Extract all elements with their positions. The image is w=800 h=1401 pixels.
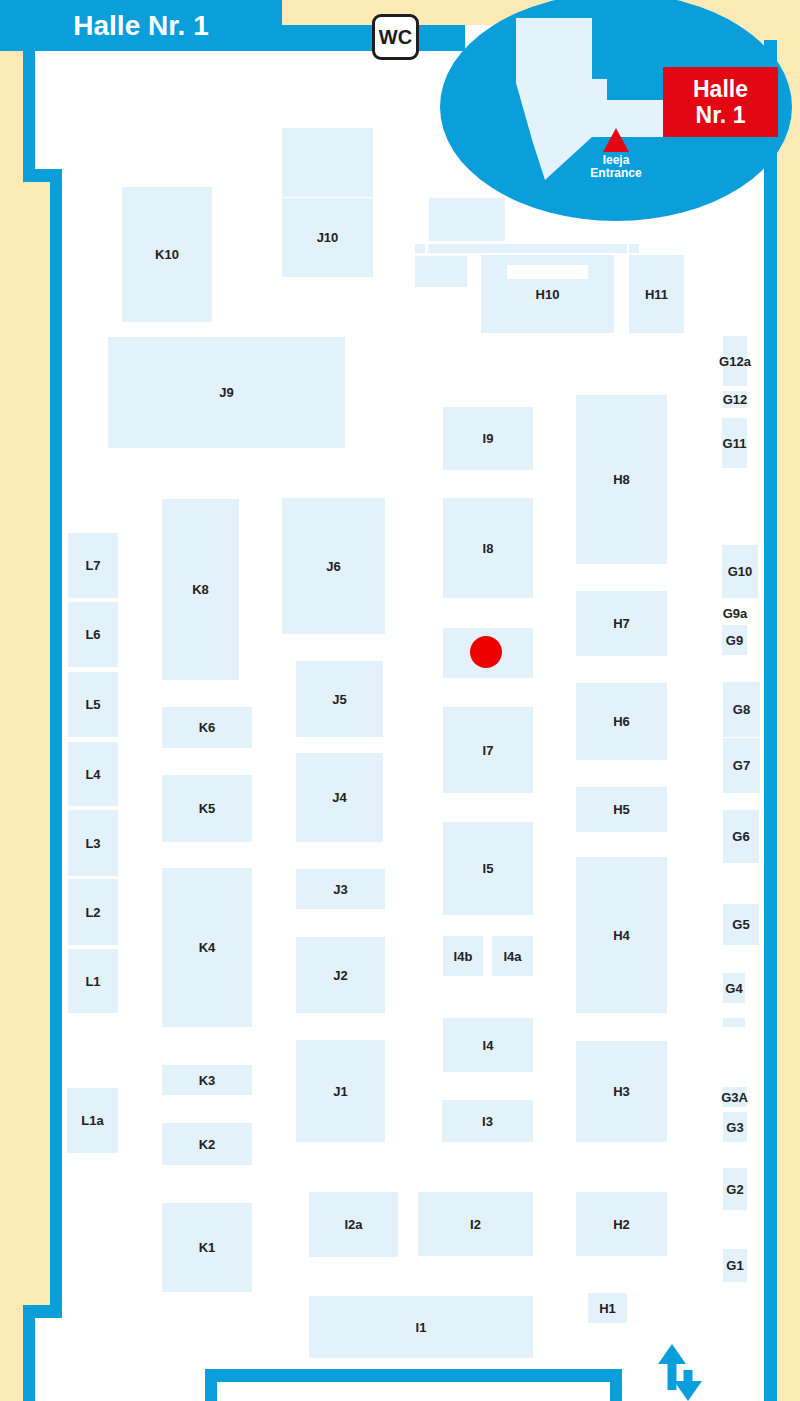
booth-label: H1 xyxy=(599,1301,616,1316)
wall-bottom-entrance-stub-right xyxy=(610,1382,622,1401)
wall-left-lower xyxy=(23,1318,35,1401)
booth-label: K10 xyxy=(155,247,179,262)
map-area-area-top-2 xyxy=(415,256,467,287)
booth-label: J5 xyxy=(332,692,346,707)
booth-j6[interactable]: J6 xyxy=(282,498,385,634)
booth-label: G12 xyxy=(723,392,748,407)
booth-l4[interactable]: L4 xyxy=(68,742,118,806)
booth-label: L4 xyxy=(85,767,100,782)
booth-label: K3 xyxy=(199,1073,216,1088)
booth-label: G4 xyxy=(725,981,742,996)
booth-g2[interactable]: G2 xyxy=(723,1168,747,1210)
booth-j3[interactable]: J3 xyxy=(296,869,385,909)
booth-label: G11 xyxy=(723,436,747,451)
booth-label: I4b xyxy=(454,949,473,964)
booth-i3[interactable]: I3 xyxy=(442,1100,533,1142)
booth-label: J1 xyxy=(333,1084,347,1099)
booth-k10[interactable]: K10 xyxy=(122,187,212,322)
booth-label: J4 xyxy=(332,790,346,805)
booth-h2[interactable]: H2 xyxy=(576,1192,667,1256)
booth-label: G9a xyxy=(723,606,748,621)
booth-label: I9 xyxy=(483,431,494,446)
wall-bottom-entrance-stub-left xyxy=(205,1382,217,1401)
booth-l2[interactable]: L2 xyxy=(68,879,118,945)
booth-label: I4a xyxy=(503,949,521,964)
booth-i2[interactable]: I2 xyxy=(418,1192,533,1256)
booth-label: L5 xyxy=(85,697,100,712)
booth-i5[interactable]: I5 xyxy=(443,822,533,915)
booth-l5[interactable]: L5 xyxy=(68,672,118,737)
booth-l1a[interactable]: L1a xyxy=(67,1088,118,1153)
booth-g12a[interactable]: G12a xyxy=(723,336,747,386)
booth-g12[interactable]: G12 xyxy=(723,391,747,408)
booth-label: H4 xyxy=(613,928,630,943)
entrance-marker-icon xyxy=(603,128,629,152)
booth-h3[interactable]: H3 xyxy=(576,1041,667,1142)
booth-k1[interactable]: K1 xyxy=(162,1203,252,1292)
booth-h6[interactable]: H6 xyxy=(576,683,667,760)
booth-label: H5 xyxy=(613,802,630,817)
booth-label: J2 xyxy=(333,968,347,983)
booth-k4[interactable]: K4 xyxy=(162,868,252,1027)
booth-g5[interactable]: G5 xyxy=(723,904,759,945)
background-right-column xyxy=(777,25,800,1401)
booth-label: H2 xyxy=(613,1217,630,1232)
booth-label: H10 xyxy=(536,287,560,302)
booth-g3[interactable]: G3 xyxy=(723,1112,747,1142)
booth-label: H3 xyxy=(613,1084,630,1099)
booth-i4[interactable]: I4 xyxy=(443,1018,533,1072)
wall-right xyxy=(764,40,777,1401)
booth-label: G3 xyxy=(726,1120,743,1135)
booth-g6[interactable]: G6 xyxy=(723,810,759,863)
booth-j4[interactable]: J4 xyxy=(296,753,383,842)
booth-k3[interactable]: K3 xyxy=(162,1065,252,1095)
booth-k2[interactable]: K2 xyxy=(162,1123,252,1165)
booth-l1[interactable]: L1 xyxy=(68,949,118,1013)
booth-label: L3 xyxy=(85,836,100,851)
booth-label: G9 xyxy=(726,633,743,648)
booth-g7[interactable]: G7 xyxy=(723,738,760,793)
booth-g4[interactable]: G4 xyxy=(723,973,745,1003)
wall-left-main xyxy=(50,170,62,1305)
booth-g3a[interactable]: G3A xyxy=(722,1087,747,1107)
booth-label: I1 xyxy=(416,1320,427,1335)
map-area-strip-1 xyxy=(415,244,425,253)
booth-i8[interactable]: I8 xyxy=(443,498,533,598)
booth-i7[interactable]: I7 xyxy=(443,707,533,793)
booth-label: I3 xyxy=(482,1114,493,1129)
hall-title-banner: Halle Nr. 1 xyxy=(0,0,282,51)
stairs-up-down-icon xyxy=(652,1341,704,1401)
booth-l6[interactable]: L6 xyxy=(68,602,118,667)
booth-g10[interactable]: G10 xyxy=(722,545,758,598)
booth-h11[interactable]: H11 xyxy=(629,255,684,333)
wall-bottom-entrance-bar xyxy=(205,1369,622,1382)
booth-j2[interactable]: J2 xyxy=(296,937,385,1013)
booth-label: K2 xyxy=(199,1137,216,1152)
booth-label: G3A xyxy=(721,1090,748,1105)
booth-label: I4 xyxy=(483,1038,494,1053)
booth-i1[interactable]: I1 xyxy=(309,1296,533,1358)
background-left-wide xyxy=(0,172,50,1305)
booth-l3[interactable]: L3 xyxy=(68,810,118,876)
booth-label: K4 xyxy=(199,940,216,955)
booth-h10[interactable]: H10 xyxy=(481,255,614,333)
booth-i2a[interactable]: I2a xyxy=(309,1192,398,1257)
booth-label: J10 xyxy=(317,230,339,245)
booth-label: I8 xyxy=(483,541,494,556)
wc-sign: WC xyxy=(372,14,419,60)
booth-label: G1 xyxy=(726,1258,743,1273)
booth-label: K8 xyxy=(192,582,209,597)
booth-label: L2 xyxy=(85,905,100,920)
booth-label: H6 xyxy=(613,714,630,729)
booth-h7[interactable]: H7 xyxy=(576,591,667,656)
map-area-strip-2 xyxy=(428,244,627,253)
booth-i9[interactable]: I9 xyxy=(443,407,533,470)
booth-i4a[interactable]: I4a xyxy=(492,936,533,976)
entrance-label: Ieeja Entrance xyxy=(566,154,666,180)
booth-k8[interactable]: K8 xyxy=(162,499,239,680)
booth-k6[interactable]: K6 xyxy=(162,707,252,748)
booth-label: L7 xyxy=(85,558,100,573)
booth-label: G12a xyxy=(719,354,751,369)
wall-left-upper xyxy=(23,51,35,172)
hall-title: Halle Nr. 1 xyxy=(73,10,208,42)
booth-j5[interactable]: J5 xyxy=(296,661,383,737)
booth-g9[interactable]: G9 xyxy=(722,625,747,655)
booth-g11[interactable]: G11 xyxy=(722,418,747,468)
booth-i4b[interactable]: I4b xyxy=(443,936,483,976)
booth-label: G7 xyxy=(733,758,750,773)
booth-label: G2 xyxy=(726,1182,743,1197)
booth-label: L1 xyxy=(85,974,100,989)
booth-notch xyxy=(507,265,588,279)
booth-g1[interactable]: G1 xyxy=(723,1249,747,1282)
booth-label: G8 xyxy=(733,702,750,717)
booth-j10[interactable]: J10 xyxy=(282,198,373,277)
map-area-J10-annex xyxy=(282,128,373,197)
booth-label: J6 xyxy=(326,559,340,574)
booth-h5[interactable]: H5 xyxy=(576,787,667,832)
map-area-strip-3 xyxy=(629,244,639,253)
booth-label: I2a xyxy=(344,1217,362,1232)
wc-sign-label: WC xyxy=(379,26,412,49)
booth-label: G10 xyxy=(728,564,753,579)
booth-label: L6 xyxy=(85,627,100,642)
booth-g9a[interactable]: G9a xyxy=(723,604,747,622)
booth-h8[interactable]: H8 xyxy=(576,395,667,564)
booth-label: L1a xyxy=(81,1113,103,1128)
booth-label: G6 xyxy=(732,829,749,844)
booth-label: K6 xyxy=(199,720,216,735)
booth-g8[interactable]: G8 xyxy=(723,682,760,737)
booth-label: J3 xyxy=(333,882,347,897)
entrance-label-line2: Entrance xyxy=(566,167,666,180)
map-area-strip-g4 xyxy=(723,1018,745,1027)
inset-hall-label-line1: Halle xyxy=(693,76,748,102)
inset-hall-label: Halle Nr. 1 xyxy=(663,67,778,137)
booth-label: K5 xyxy=(199,801,216,816)
inset-hall-label-line2: Nr. 1 xyxy=(696,102,746,128)
wall-left-jog-bottom xyxy=(23,1305,62,1318)
booth-label: H7 xyxy=(613,616,630,631)
booth-label: H8 xyxy=(613,472,630,487)
booth-l7[interactable]: L7 xyxy=(68,533,118,598)
booth-label: G5 xyxy=(732,917,749,932)
booth-label: K1 xyxy=(199,1240,216,1255)
booth-j1[interactable]: J1 xyxy=(296,1040,385,1142)
booth-j9[interactable]: J9 xyxy=(108,337,345,448)
booth-h1[interactable]: H1 xyxy=(588,1293,627,1323)
current-position-marker xyxy=(470,636,502,668)
booth-label: I7 xyxy=(483,743,494,758)
booth-label: J9 xyxy=(219,385,233,400)
booth-k5[interactable]: K5 xyxy=(162,775,252,842)
booth-label: I5 xyxy=(483,861,494,876)
booth-h4[interactable]: H4 xyxy=(576,857,667,1013)
hall-floor-plan: K10J10J9H10H11G12aG12G11I9H8L7L6L5L4L3L2… xyxy=(0,0,800,1401)
booth-label: I2 xyxy=(470,1217,481,1232)
booth-label: H11 xyxy=(645,287,668,302)
